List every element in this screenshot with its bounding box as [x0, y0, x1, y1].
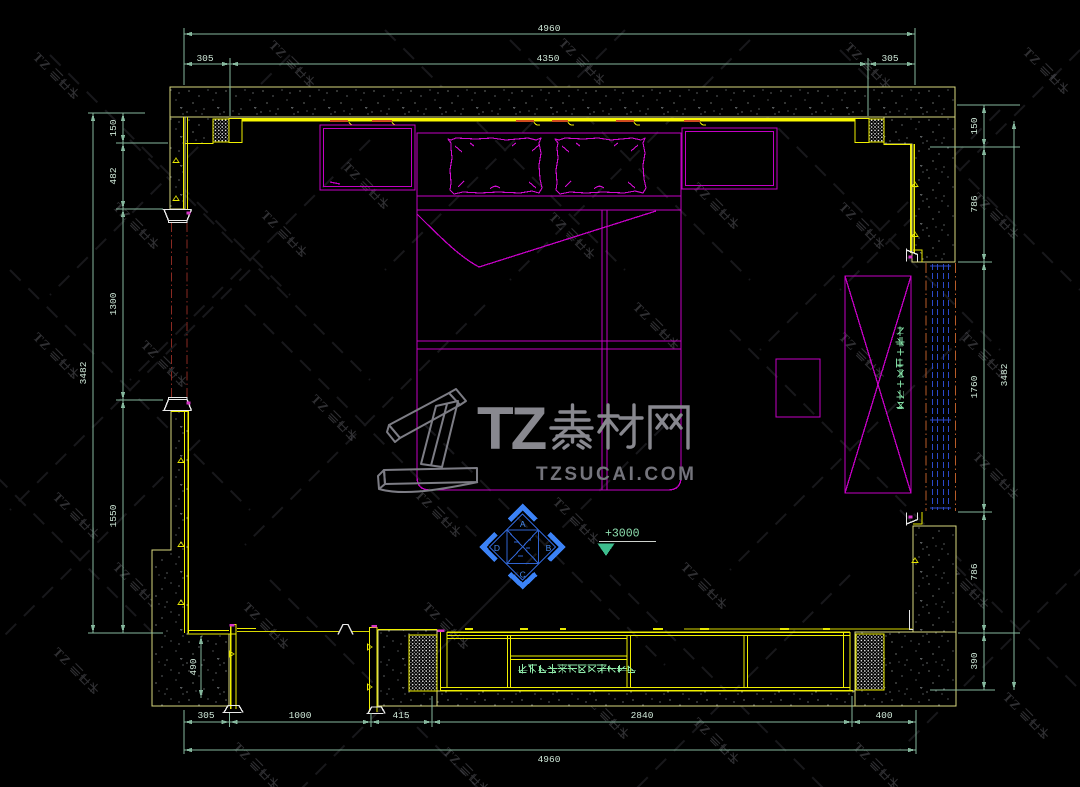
svg-text:305: 305: [881, 53, 898, 64]
svg-text:1550: 1550: [108, 504, 119, 527]
svg-text:1760: 1760: [969, 375, 980, 398]
svg-text:490: 490: [188, 658, 199, 675]
svg-text:3482: 3482: [999, 363, 1010, 386]
svg-text:4350: 4350: [537, 53, 560, 64]
svg-text:1000: 1000: [289, 710, 312, 721]
svg-text:786: 786: [969, 563, 980, 580]
svg-text:1300: 1300: [108, 292, 119, 315]
svg-text:305: 305: [196, 53, 213, 64]
svg-text:786: 786: [969, 195, 980, 212]
svg-text:415: 415: [392, 710, 409, 721]
svg-text:4960: 4960: [538, 754, 561, 765]
svg-text:A: A: [520, 519, 526, 529]
svg-text:4960: 4960: [538, 23, 561, 34]
svg-text:B: B: [546, 543, 552, 553]
svg-text:TZ: TZ: [477, 395, 546, 462]
svg-text:3482: 3482: [78, 361, 89, 384]
svg-text:C: C: [520, 570, 526, 580]
svg-text:150: 150: [108, 119, 119, 136]
svg-text:+3000: +3000: [605, 528, 640, 541]
svg-text:482: 482: [108, 167, 119, 184]
svg-text:TZSUCAI.COM: TZSUCAI.COM: [536, 464, 697, 485]
svg-text:390: 390: [969, 652, 980, 669]
svg-text:2840: 2840: [631, 710, 654, 721]
svg-text:D: D: [494, 543, 500, 553]
svg-text:400: 400: [875, 710, 892, 721]
svg-text:150: 150: [969, 117, 980, 134]
svg-text:305: 305: [197, 710, 214, 721]
